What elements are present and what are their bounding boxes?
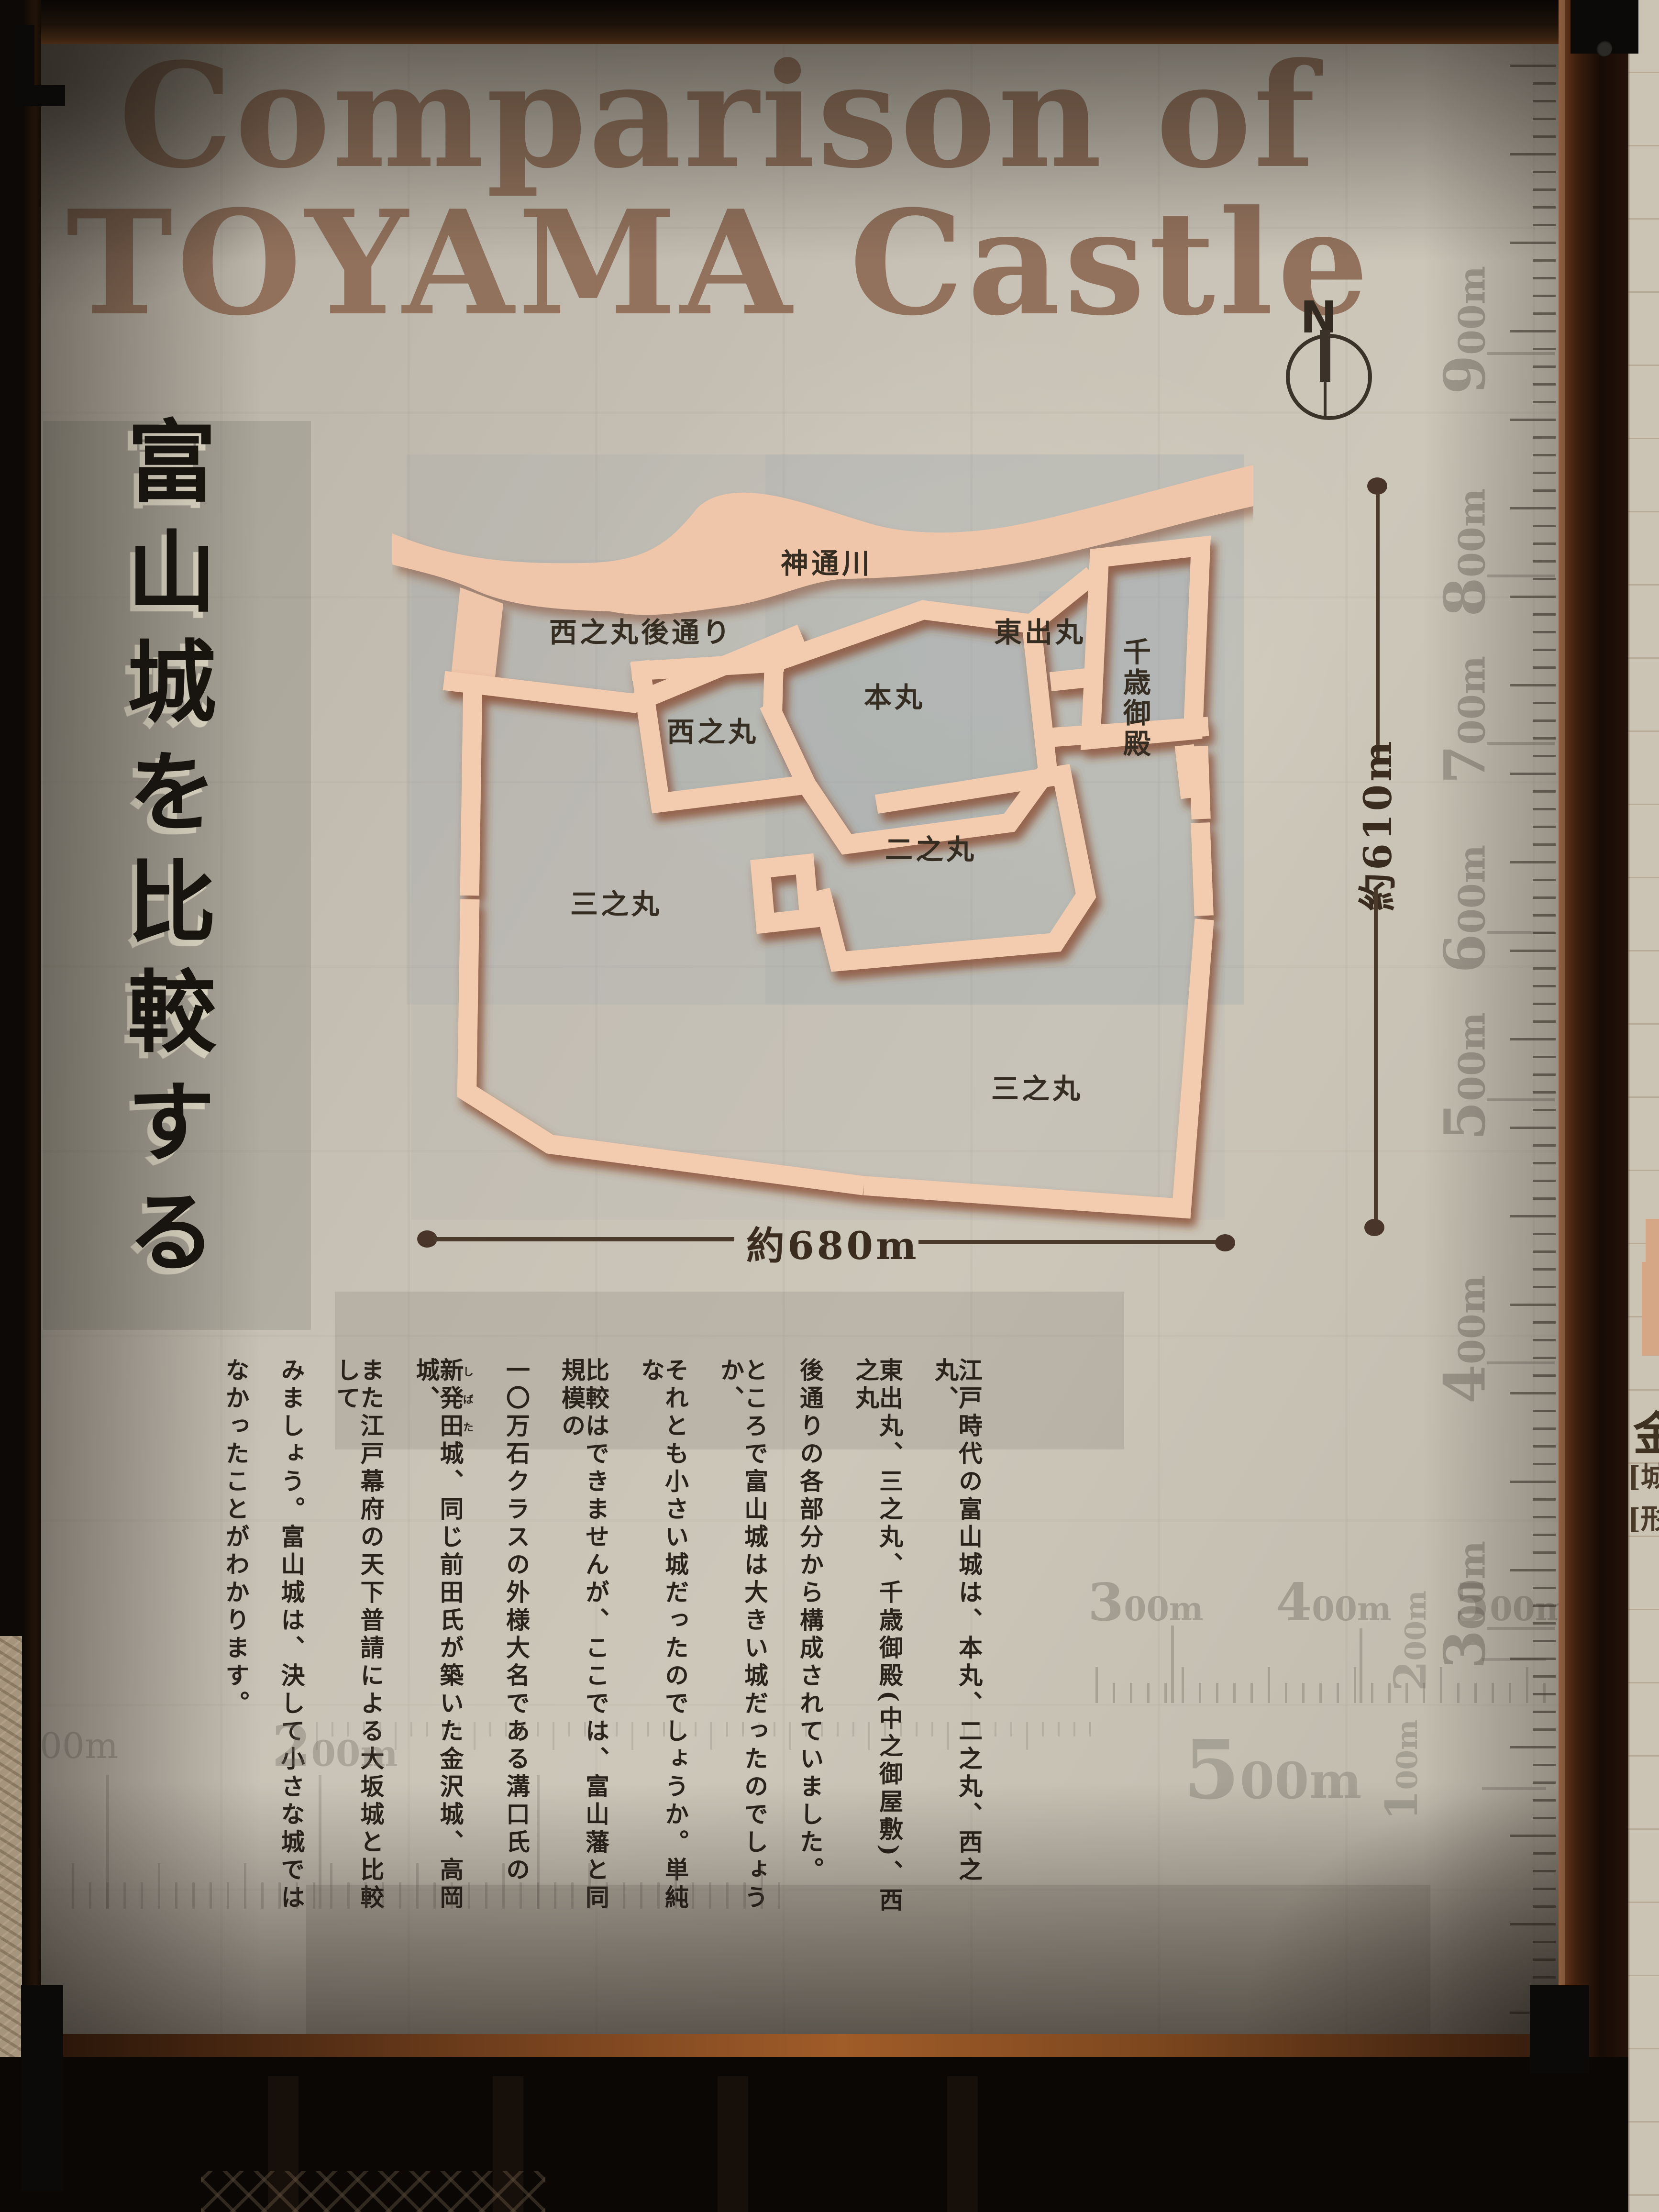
bracket-bottom-right-icon [1530, 1985, 1589, 2073]
neighbor-line2-fragment: [形式 [1627, 1496, 1659, 1537]
frame-top [0, 0, 1659, 44]
neighbor-line1-fragment: [城主 [1627, 1454, 1659, 1494]
cabinet-post [718, 2076, 748, 2212]
museum-photo: Comparison of TOYAMA Castle 富山城を比較する N [0, 0, 1659, 2212]
lighting-vignette [33, 42, 1559, 2042]
frame-right [1559, 0, 1628, 2212]
neighbor-panel [1628, 0, 1659, 2212]
screw-icon [1596, 40, 1612, 56]
neighbor-title-fragment: 金 [1633, 1397, 1659, 1463]
neighbor-castle-shape-2 [1642, 1262, 1659, 1356]
bracket-bottom-left-icon [21, 1985, 63, 2191]
neighbor-castle-shape [1646, 1219, 1659, 1263]
bracket-top-left-foot-icon [12, 85, 65, 106]
frame-right-highlight [1559, 0, 1565, 2212]
cabinet-post [947, 2076, 978, 2212]
cabinet-lattice [201, 2171, 545, 2212]
frame-left [22, 0, 41, 2212]
left-shadow-column [0, 0, 24, 1641]
